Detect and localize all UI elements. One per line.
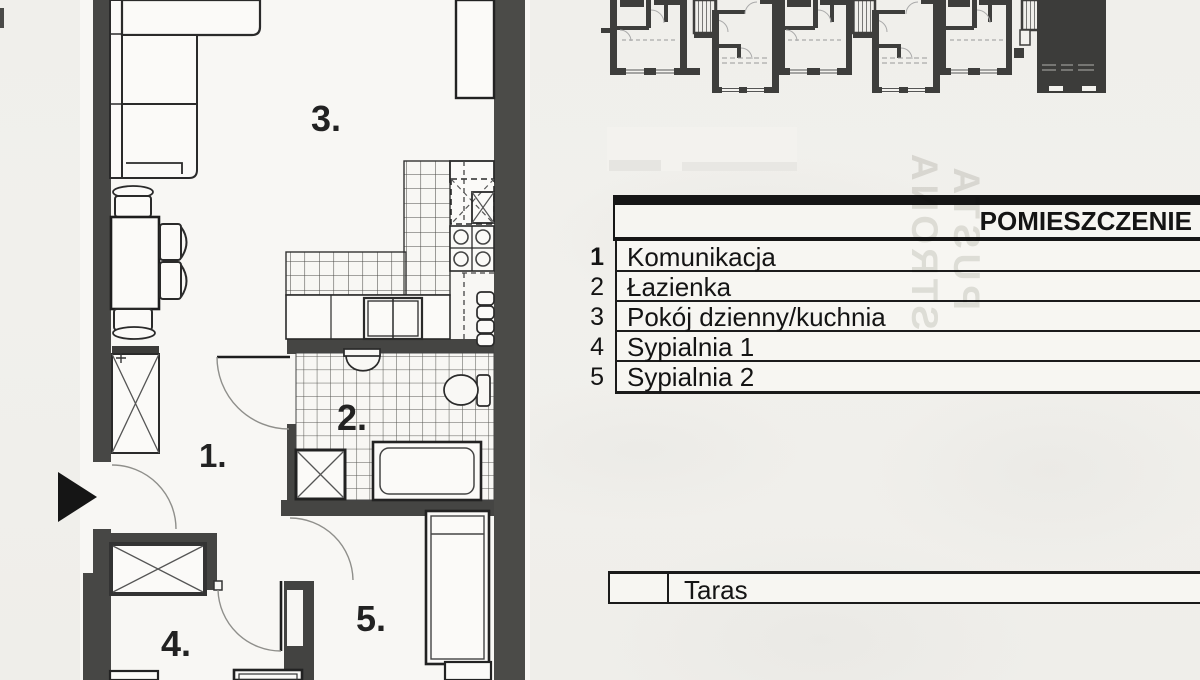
svg-text:1.: 1. <box>199 437 227 474</box>
svg-text:2.: 2. <box>337 397 367 438</box>
svg-text:4.: 4. <box>161 623 191 664</box>
svg-text:5.: 5. <box>356 598 386 639</box>
svg-text:3.: 3. <box>311 98 341 139</box>
